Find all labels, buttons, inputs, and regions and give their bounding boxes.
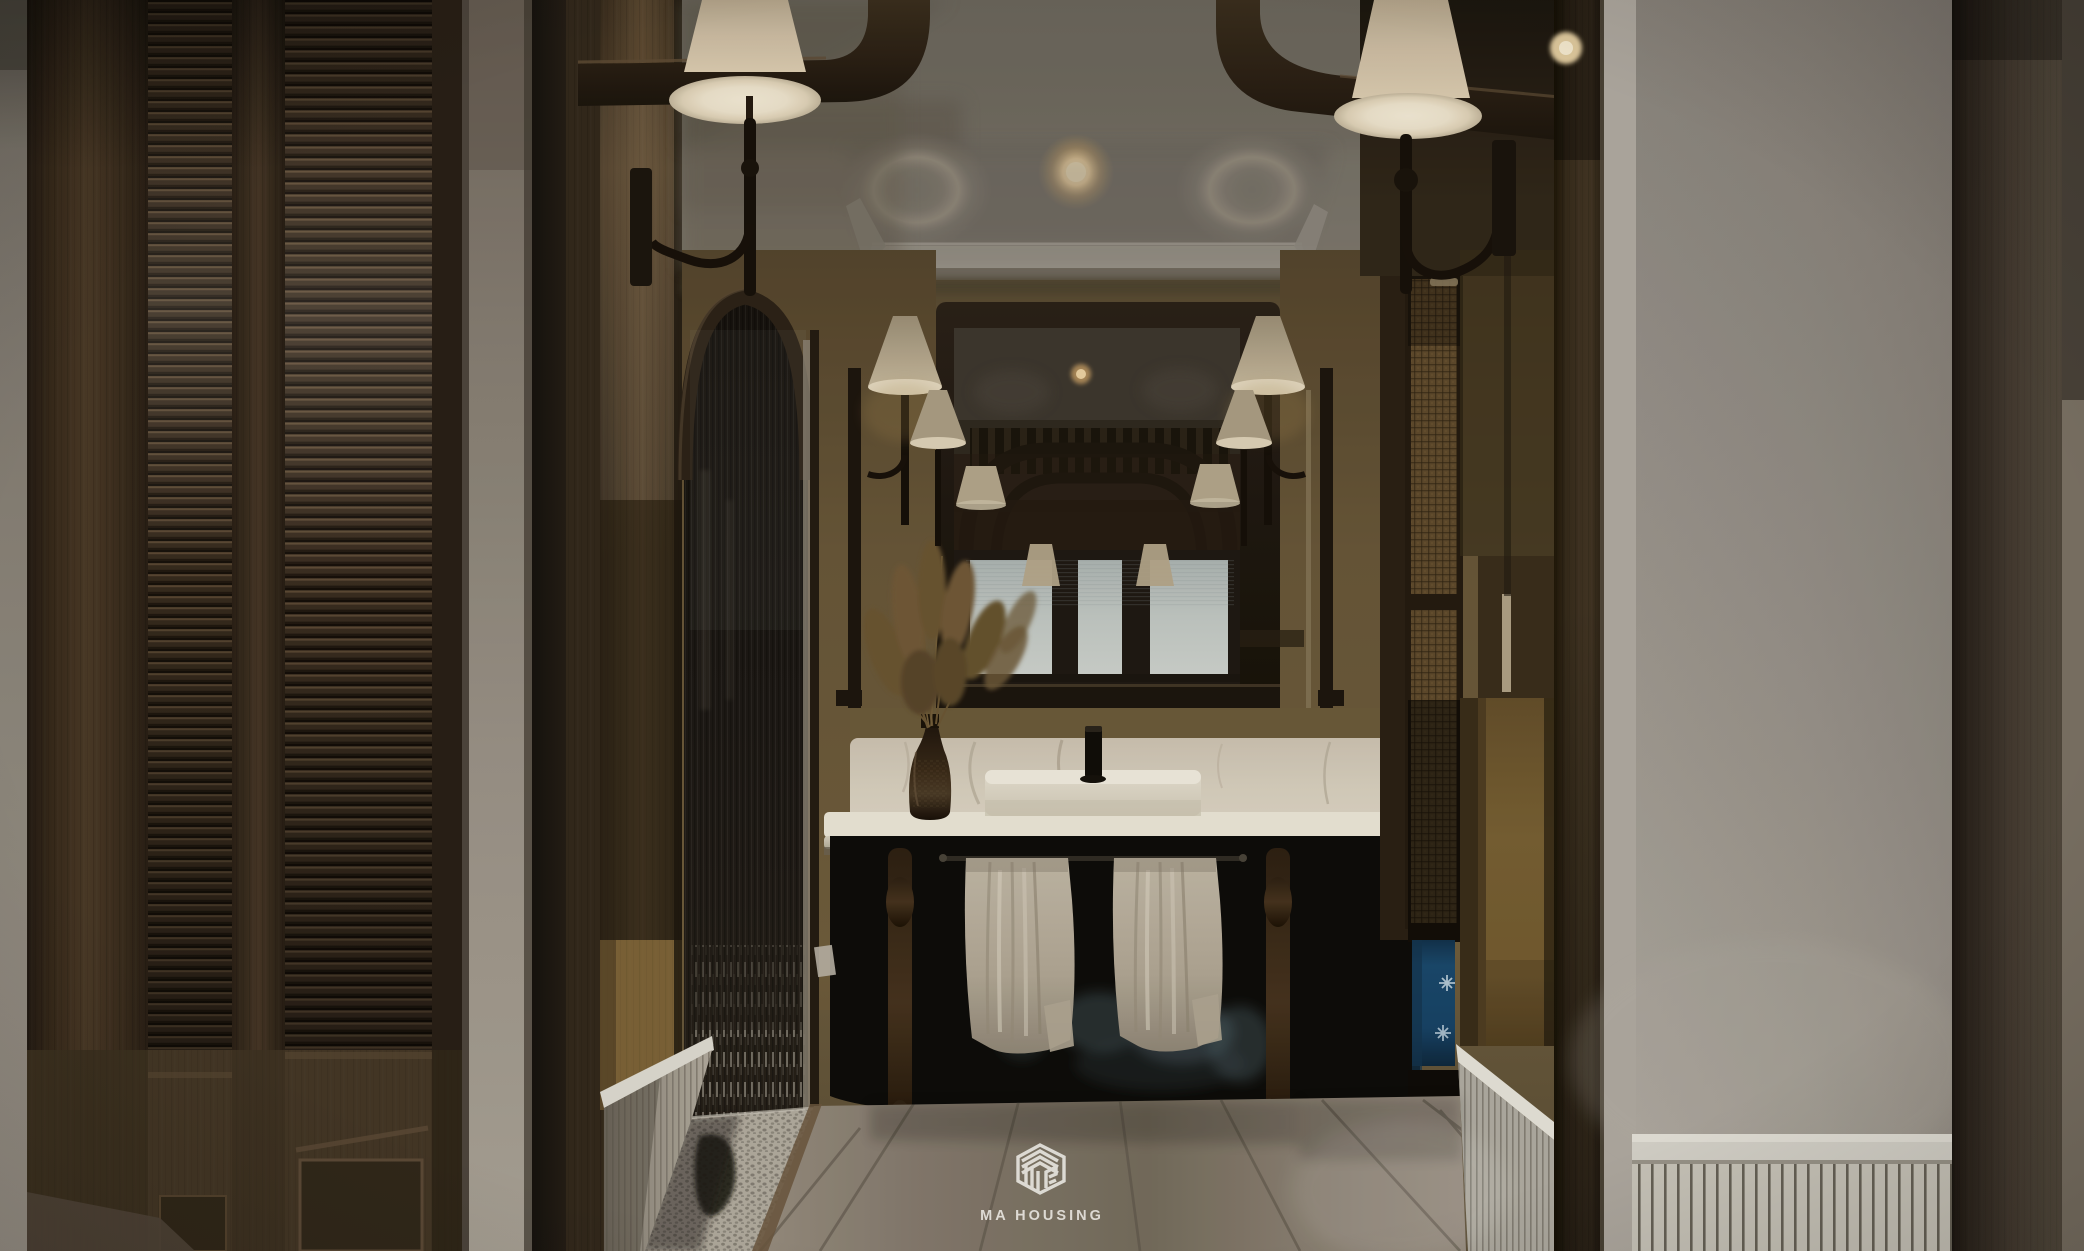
svg-text:MA HOUSING: MA HOUSING	[980, 1208, 1104, 1224]
